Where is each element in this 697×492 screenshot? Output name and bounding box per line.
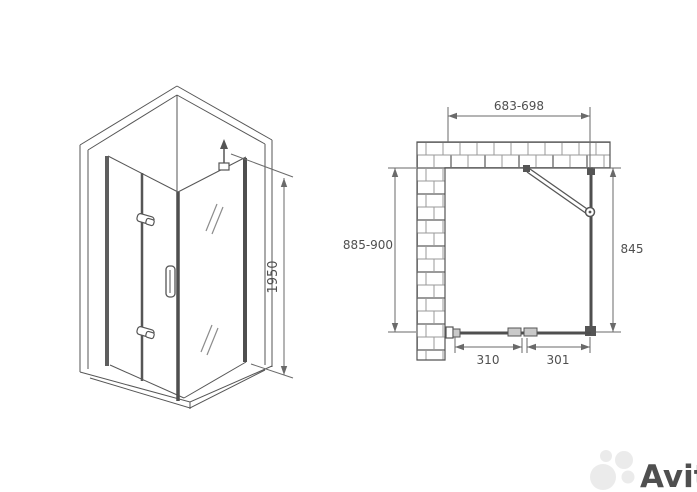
mount-arrow-icon: [219, 139, 229, 170]
drawing-svg: 1950: [0, 0, 697, 492]
hinge-top: [136, 213, 155, 226]
dimension-plan-left-label: 885-900: [343, 238, 393, 252]
glass-reflections: [201, 204, 223, 355]
dimension-plan-bottom: [455, 337, 590, 353]
avito-logo-icon: [590, 450, 635, 490]
dimension-plan-right: [593, 168, 621, 332]
technical-drawing: 1950: [0, 0, 697, 492]
avito-watermark-label: Avito: [640, 459, 697, 492]
avito-watermark: Avito: [590, 450, 697, 492]
door-slider-left: [508, 328, 521, 336]
shower-tray: [80, 366, 272, 409]
dimension-plan-right-label: 845: [621, 242, 644, 256]
hinge-bottom: [136, 326, 155, 339]
plan-open-door: [523, 165, 595, 217]
plan-side-panel: [585, 168, 596, 336]
dimension-plan-bottom-right-label: 301: [547, 353, 570, 367]
plan-view: 683-698 885-900 845: [343, 99, 644, 367]
dimension-plan-bottom-left-label: 310: [477, 353, 500, 367]
dimension-front-height-label: 1950: [266, 260, 281, 293]
dimension-plan-top-label: 683-698: [494, 99, 544, 113]
front-view-3d: 1950: [80, 86, 293, 409]
door-slider-right: [524, 328, 537, 336]
plan-door-track: [446, 327, 591, 338]
door-pivot: [523, 165, 530, 172]
door-handle: [166, 266, 175, 297]
dimension-front-height: [231, 154, 293, 378]
